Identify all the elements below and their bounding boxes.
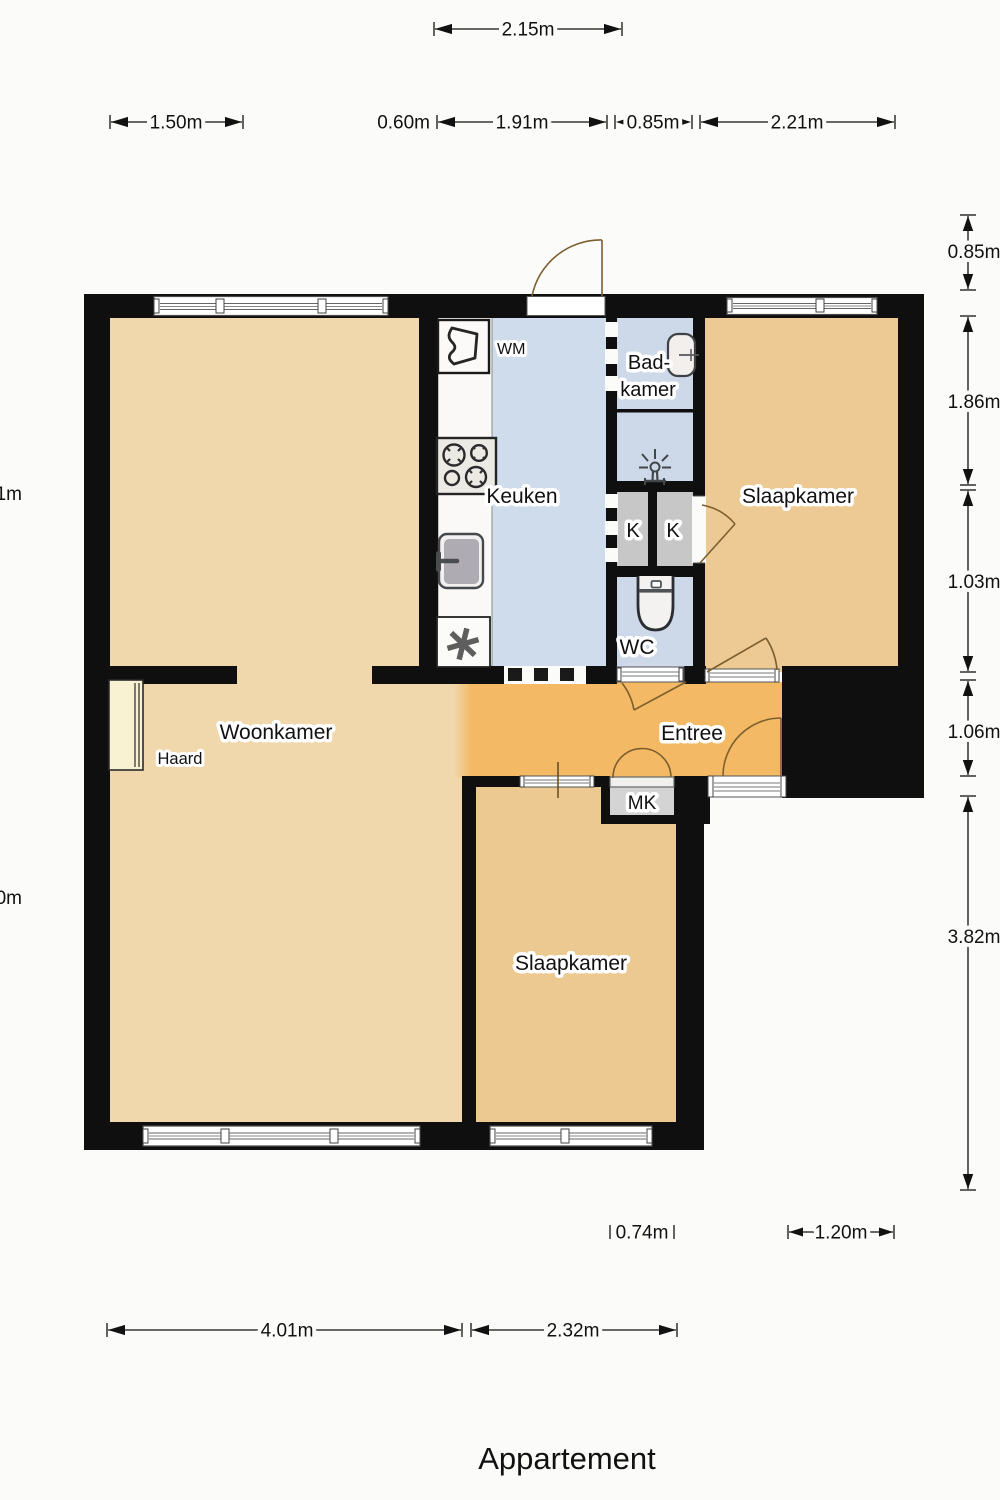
svg-text:1.03m: 1.03m [948, 572, 1000, 593]
svg-text:K: K [626, 520, 640, 542]
svg-text:0.60m: 0.60m [377, 113, 430, 134]
svg-text:Slaapkamer: Slaapkamer [515, 952, 627, 975]
svg-text:2.21m: 2.21m [771, 113, 824, 134]
svg-text:3.82m: 3.82m [948, 927, 1000, 948]
svg-text:0.74m: 0.74m [616, 1223, 669, 1244]
svg-text:1.91m: 1.91m [496, 113, 549, 134]
svg-text:0.85m: 0.85m [627, 113, 680, 134]
svg-text:MK: MK [628, 793, 657, 814]
svg-text:1.86m: 1.86m [948, 392, 1000, 413]
svg-text:2.15m: 2.15m [502, 20, 555, 41]
svg-text:Haard: Haard [158, 750, 203, 768]
svg-text:WM: WM [497, 341, 525, 358]
svg-text:4.01m: 4.01m [261, 1321, 314, 1342]
svg-text:Entree: Entree [661, 722, 723, 745]
svg-text:2.32m: 2.32m [547, 1321, 600, 1342]
svg-text:K: K [666, 520, 680, 542]
svg-text:1m: 1m [0, 484, 22, 505]
svg-text:Appartement: Appartement [478, 1441, 656, 1476]
svg-text:Keuken: Keuken [486, 485, 557, 508]
svg-text:WC: WC [620, 636, 655, 659]
svg-text:Woonkamer: Woonkamer [220, 721, 333, 744]
svg-text:1.20m: 1.20m [815, 1223, 868, 1244]
svg-text:0.85m: 0.85m [948, 242, 1000, 263]
svg-text:1.50m: 1.50m [150, 113, 203, 134]
svg-text:0m: 0m [0, 888, 22, 909]
svg-text:kamer: kamer [620, 379, 676, 401]
svg-text:Slaapkamer: Slaapkamer [742, 485, 854, 508]
svg-text:Bad-: Bad- [628, 352, 670, 374]
svg-text:1.06m: 1.06m [948, 722, 1000, 743]
